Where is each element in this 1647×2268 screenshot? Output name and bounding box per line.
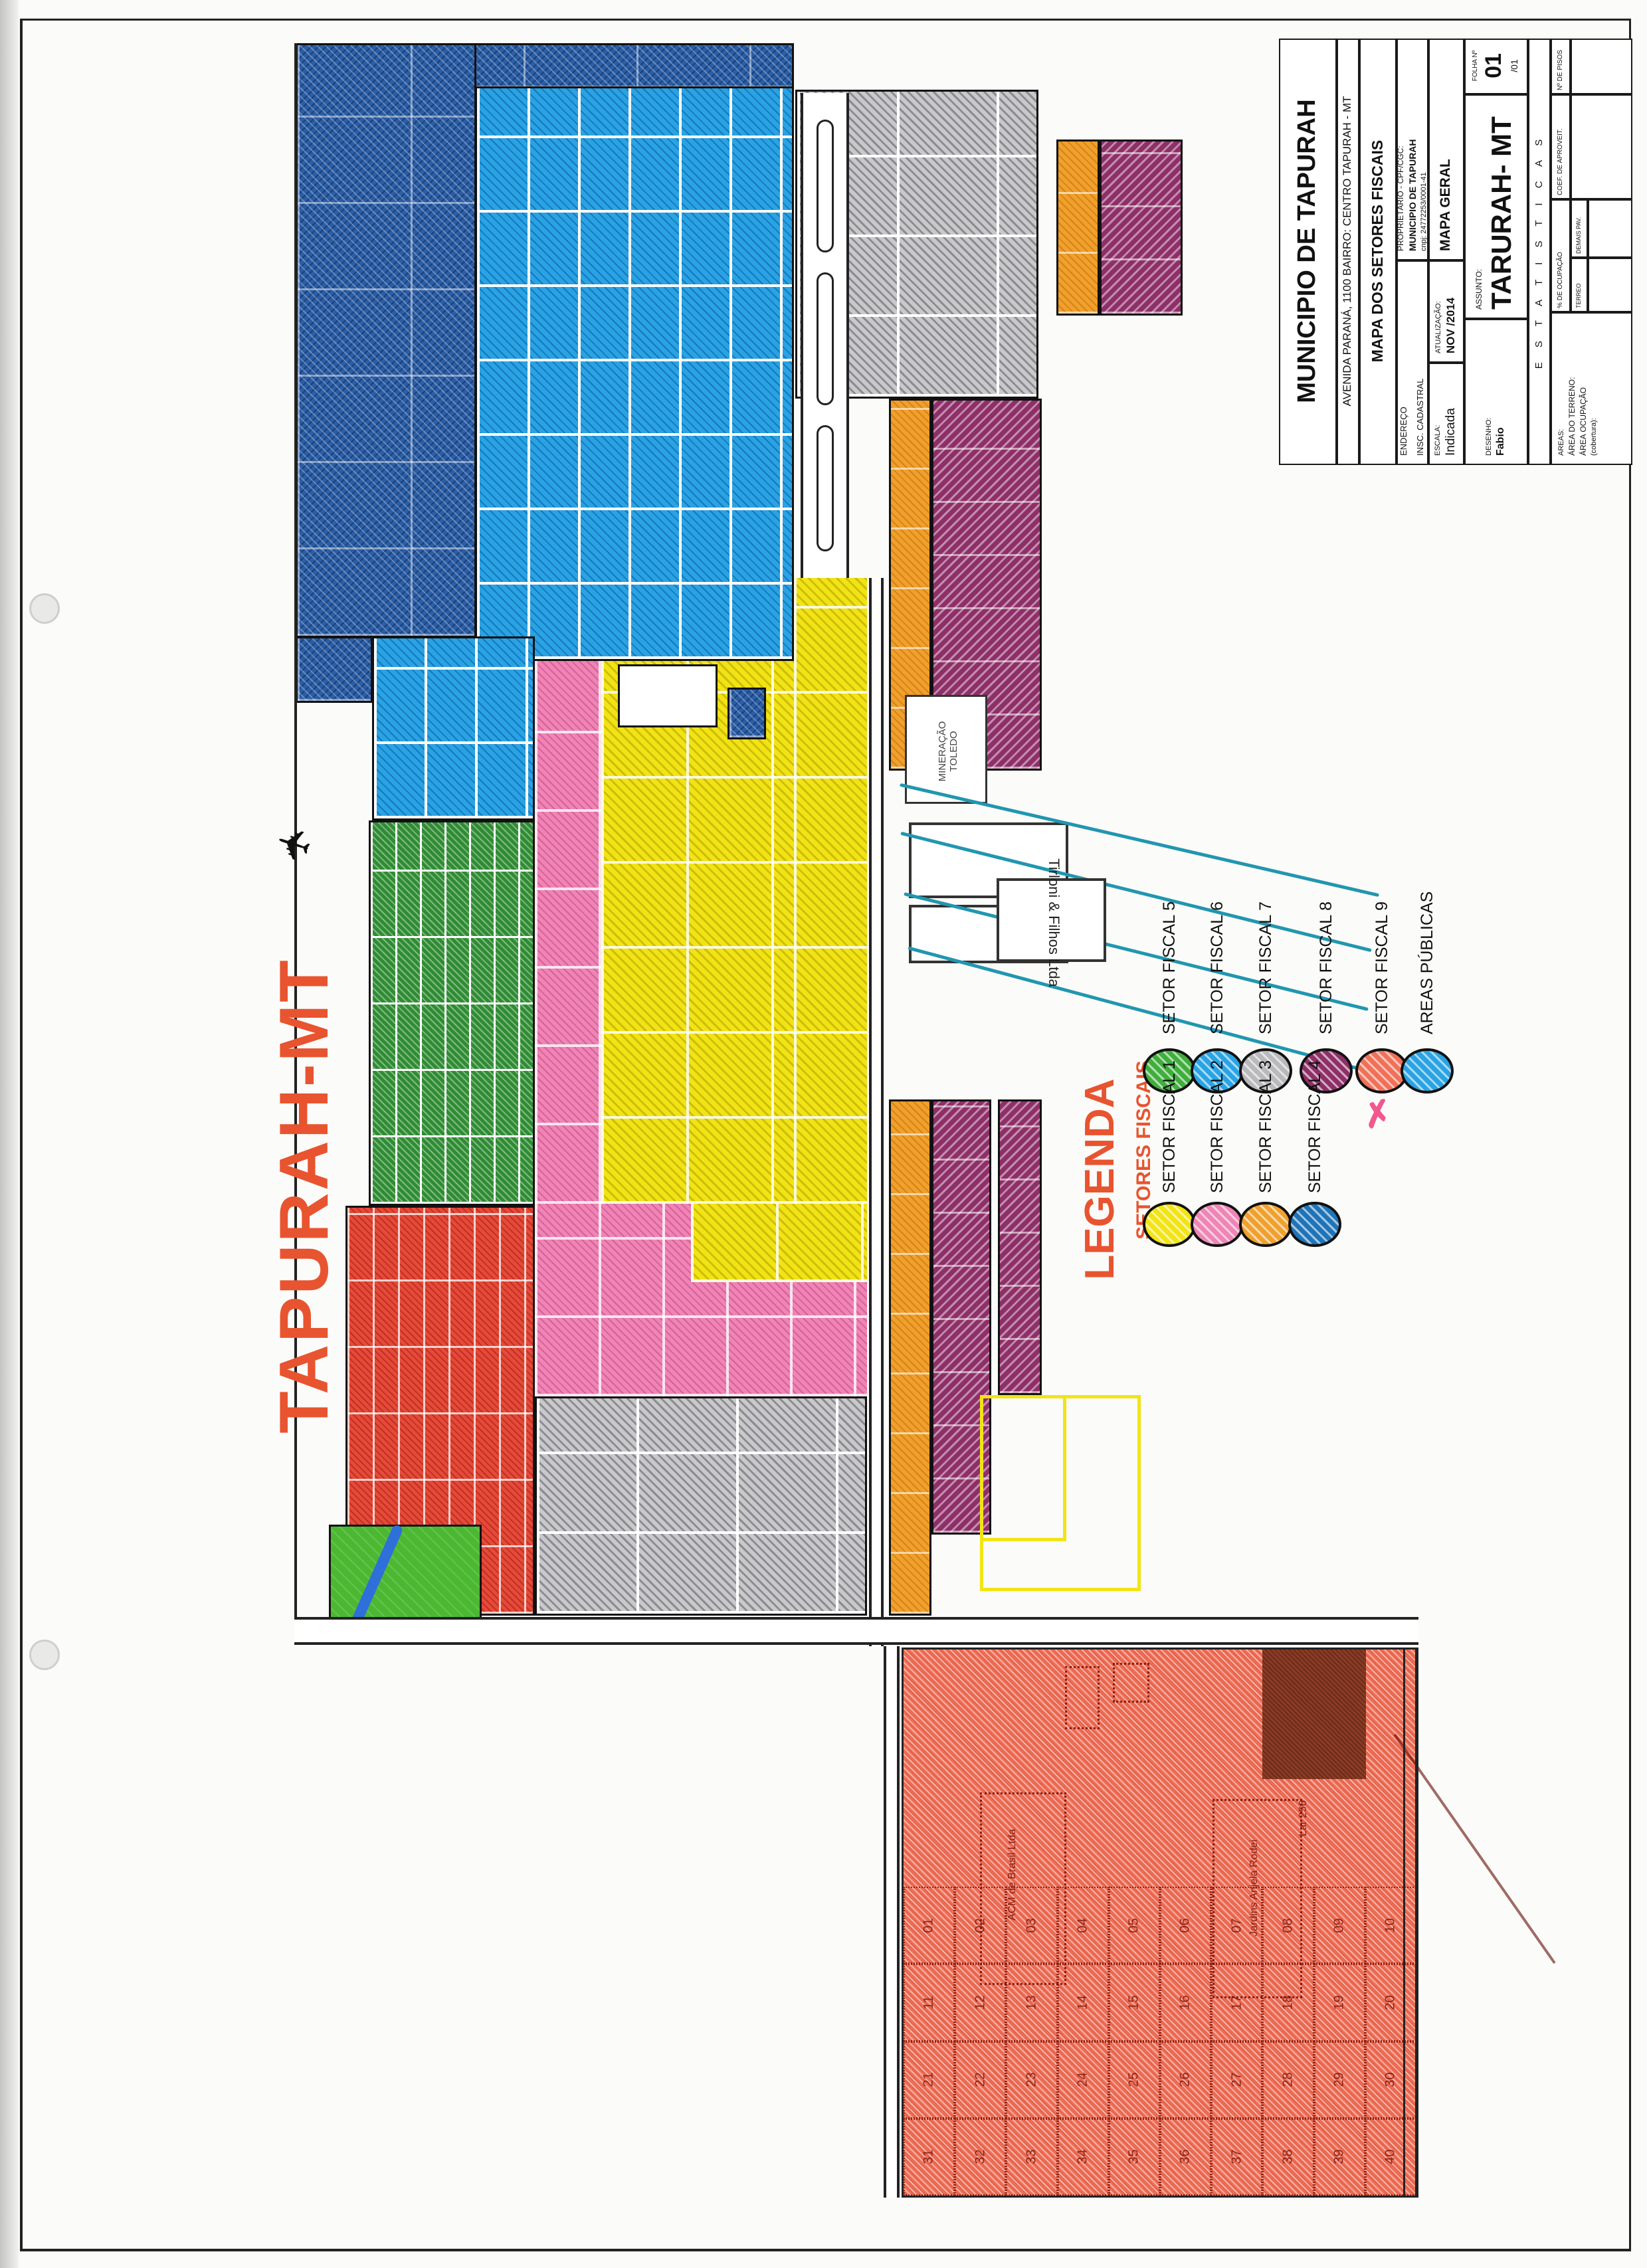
- lot-cell: 13: [1006, 1964, 1057, 2041]
- tb-areas-cell: AREAS: ÁREA DO TERRENO: ÁREA OCUPAÇÃO (c…: [1551, 312, 1632, 465]
- lot-cell: 25: [1109, 2041, 1160, 2119]
- page-border-top: [20, 19, 1631, 21]
- region-setor-fiscal-1: [601, 661, 794, 1204]
- lot-cell: 02: [955, 1887, 1006, 1964]
- tb-coef-label-cell: COEF. DE APROVEIT.: [1551, 94, 1571, 199]
- lot-cell: 03: [1006, 1887, 1057, 1964]
- tb-statistics-header: E S T A T I S T I C A S: [1533, 134, 1545, 369]
- lot-cell: 29: [1314, 2041, 1365, 2119]
- legend-label-7: SETOR FISCAL 7: [1254, 895, 1277, 1034]
- tb-stat-coef: COEF. DE APROVEIT.: [1557, 97, 1564, 195]
- lot-cell: 33: [1006, 2119, 1057, 2196]
- tb-stats-header-cell: E S T A T I S T I C A S: [1528, 39, 1551, 465]
- tb-areas-occupation: ÁREA OCUPAÇÃO: [1579, 320, 1588, 456]
- tb-assunto-cell: ASSUNTO: TARURAH- MT: [1464, 94, 1528, 319]
- region-setor-fiscal-4b: [296, 43, 476, 638]
- tb-escala-label: ESCALA:: [1434, 371, 1442, 456]
- lot-cell: 15: [1109, 1964, 1160, 2041]
- road-salmon-left: [884, 1646, 900, 2198]
- hole-punch-top: [29, 593, 60, 624]
- tb-atualizacao-label: ATUALIZAÇÃO:: [1434, 268, 1442, 353]
- tb-owner: MUNICIPIO DE TAPURAH: [1407, 47, 1418, 251]
- airplane-icon: ✈: [269, 816, 318, 875]
- empty-block: [618, 664, 718, 727]
- lot-cell: 18: [1262, 1964, 1313, 2041]
- legend-label-4: SETOR FISCAL 4: [1304, 1074, 1326, 1193]
- parcel-lar-label: Lar 256: [1298, 1800, 1309, 1836]
- region-setor-fiscal-2: [535, 661, 601, 1204]
- tb-desenho-cell: DESENHO: Fabio: [1464, 319, 1528, 465]
- tb-escala-value: Indicada: [1444, 371, 1458, 456]
- mineracao-toledo-label: MINERAÇÃO TOLEDO: [935, 697, 961, 806]
- tb-stat-other-floors: DEMAIS PAV.: [1575, 202, 1582, 254]
- region-setor-fiscal-1-tail: [691, 1204, 867, 1282]
- region-setor-fiscal-7-lower: [535, 1396, 867, 1616]
- diagonal-road: [1393, 1734, 1555, 1964]
- tb-address: AVENIDA PARANÁ, 1100 BAIRRO: CENTRO TAPU…: [1341, 96, 1354, 407]
- lot-cell: 28: [1262, 2041, 1313, 2119]
- tb-assunto-value: TARURAH- MT: [1486, 102, 1517, 310]
- pink-x-mark: ✗: [1359, 1092, 1396, 1137]
- lot-cell: 19: [1314, 1964, 1365, 2041]
- tb-areas-coverage: (cobertura):: [1590, 320, 1598, 456]
- tb-folha-sub: /01: [1509, 59, 1519, 72]
- lot-cell: 10: [1365, 1887, 1416, 1964]
- lot-cell: 16: [1160, 1964, 1211, 2041]
- tb-owner-cell: PROPRIETÁRIO - CPF/CGC: MUNICIPIO DE TAP…: [1397, 39, 1428, 260]
- lot-cell: 22: [955, 2041, 1006, 2119]
- lot-cell: 14: [1058, 1964, 1109, 2041]
- tb-municipality-cell: MUNICIPIO DE TAPURAH: [1279, 39, 1337, 465]
- city-name-label: TAPURAH-MT: [261, 953, 347, 1438]
- tb-terreo-label-cell: TERREO: [1571, 258, 1588, 312]
- legend-label-8: SETOR FISCAL 8: [1315, 895, 1337, 1034]
- tirloni-box: Tirloni & Filhos Ltda: [997, 878, 1106, 962]
- region-setor-fiscal-8-lower2: [998, 1099, 1042, 1395]
- yellow-outline-parcel-inner: [980, 1395, 1066, 1541]
- lot-cell: 06: [1160, 1887, 1211, 1964]
- legend-title: LEGENDA: [1073, 1086, 1126, 1272]
- lot-cell: 24: [1058, 2041, 1109, 2119]
- tb-atualizacao-cell: ATUALIZAÇÃO: NOV /2014: [1428, 260, 1464, 363]
- lot-cell: 38: [1262, 2119, 1313, 2196]
- legend-label-10: AREAS PÚBLICAS: [1416, 895, 1438, 1034]
- region-setor-fiscal-3-top: [1056, 140, 1100, 316]
- avenue-median: [817, 120, 834, 252]
- tb-floors-value-cell: [1571, 39, 1632, 94]
- lot-cell: 21: [904, 2041, 955, 2119]
- tb-desenho-label: DESENHO:: [1485, 327, 1493, 456]
- tb-coef-value-cell: [1571, 94, 1632, 199]
- region-setor-fiscal-5: [369, 820, 535, 1206]
- scanned-map-page: MINERAÇÃO TOLEDO Tirloni & Filhos Ltda A…: [0, 0, 1647, 2268]
- dotted-parcel-small-2: [1113, 1663, 1149, 1703]
- tb-insc-label: INSC. CADASTRAL: [1415, 268, 1425, 456]
- page-border-bottom: [20, 2249, 1631, 2251]
- legend-swatch-4: [1288, 1202, 1341, 1247]
- avenue-median: [817, 272, 834, 405]
- tb-map-title: MAPA DOS SETORES FISCAIS: [1369, 140, 1387, 362]
- legend-label-9: SETOR FISCAL 9: [1371, 895, 1393, 1034]
- tb-atualizacao-value: NOV /2014: [1444, 268, 1458, 353]
- legend-label-1: SETOR FISCAL 1: [1158, 1074, 1181, 1193]
- page-border-left: [20, 19, 23, 2251]
- lot-cell: 27: [1211, 2041, 1262, 2119]
- stream-line: [908, 946, 1357, 1070]
- tb-municipality: MUNICIPIO DE TAPURAH: [1293, 99, 1321, 403]
- lot-cell: 12: [955, 1964, 1006, 2041]
- lot-cell: 09: [1314, 1887, 1365, 1964]
- region-setor-fiscal-4c: [296, 636, 373, 703]
- legend-swatch-2: [1191, 1202, 1244, 1247]
- legend-swatch-3: [1239, 1202, 1292, 1247]
- lot-grid: 0102030405060708091011121314151617181920…: [904, 1887, 1416, 2196]
- lot-cell: 40: [1365, 2119, 1416, 2196]
- lot-cell: 11: [904, 1964, 955, 2041]
- dark-block: [727, 688, 766, 739]
- lot-cell: 04: [1058, 1887, 1109, 1964]
- legend-label-2: SETOR FISCAL 2: [1206, 1074, 1228, 1193]
- tb-assunto-label: ASSUNTO:: [1474, 102, 1484, 310]
- tb-endereco-label: ENDEREÇO: [1399, 268, 1408, 456]
- road-salmon-right: [1403, 1648, 1405, 2198]
- brown-parcel: [1262, 1650, 1366, 1779]
- lot-cell: 30: [1365, 2041, 1416, 2119]
- lot-cell: 35: [1109, 2119, 1160, 2196]
- tb-desenho-value: Fabio: [1495, 327, 1507, 456]
- lot-cell: 32: [955, 2119, 1006, 2196]
- tb-maptitle-cell: MAPA DOS SETORES FISCAIS: [1359, 39, 1397, 465]
- lot-cell: 20: [1365, 1964, 1416, 2041]
- legend-swatch-1: [1143, 1202, 1196, 1247]
- lot-cell: 05: [1109, 1887, 1160, 1964]
- hole-punch-bottom: [29, 1640, 60, 1670]
- avenue: [801, 93, 849, 578]
- tb-mapa-geral: MAPA GERAL: [1438, 47, 1454, 251]
- legend-swatch-10: [1401, 1048, 1454, 1093]
- tb-folha-label: FOLHA Nº: [1472, 50, 1479, 81]
- tb-areas-label: AREAS:: [1557, 320, 1565, 456]
- region-setor-fiscal-8-top: [1100, 140, 1183, 316]
- legend-label-5: SETOR FISCAL 5: [1158, 895, 1181, 1034]
- road-salmon-right2: [1415, 1648, 1417, 2198]
- lot-cell: 23: [1006, 2041, 1057, 2119]
- lot-cell: 34: [1058, 2119, 1109, 2196]
- tirloni-label: Tirloni & Filhos Ltda: [1040, 850, 1067, 996]
- road-horizontal: [294, 1617, 1418, 1645]
- lot-cell: 39: [1314, 2119, 1365, 2196]
- tb-occupancy-label-cell: % DE OCUPAÇÃO: [1551, 199, 1571, 312]
- lot-cell: 37: [1211, 2119, 1262, 2196]
- legend-label-3: SETOR FISCAL 3: [1254, 1074, 1277, 1193]
- lot-cell: 01: [904, 1887, 955, 1964]
- tb-folha-cell: FOLHA Nº 01 /01: [1464, 39, 1528, 94]
- region-setor-fiscal-6: [475, 86, 794, 661]
- tb-demais-label-cell: DEMAIS PAV.: [1571, 199, 1588, 258]
- tb-stat-floors: Nº DE PISOS: [1557, 41, 1564, 90]
- tb-demais-value-cell: [1588, 199, 1632, 258]
- tb-mapageral-cell: MAPA GERAL: [1428, 39, 1464, 260]
- tb-address-cell: AVENIDA PARANÁ, 1100 BAIRRO: CENTRO TAPU…: [1337, 39, 1359, 465]
- tb-owner-label: PROPRIETÁRIO - CPF/CGC:: [1396, 47, 1405, 251]
- legend-label-6: SETOR FISCAL 6: [1206, 895, 1228, 1034]
- region-setor-fiscal-1b: [794, 578, 867, 1204]
- region-setor-fiscal-3-lower: [889, 1099, 931, 1616]
- region-park: [329, 1525, 482, 1622]
- lot-cell: 07: [1211, 1887, 1262, 1964]
- lot-cell: 26: [1160, 2041, 1211, 2119]
- avenue-median: [817, 425, 834, 551]
- tb-escala-cell: ESCALA: Indicada: [1428, 363, 1464, 465]
- tb-terreo-value-cell: [1588, 258, 1632, 312]
- tb-cnpj: cnpj: 24772253/0001-41: [1420, 47, 1428, 251]
- tb-stat-ground: TERREO: [1575, 260, 1582, 308]
- region-setor-fiscal-6-strip: [372, 636, 535, 820]
- tb-areas-terrain: ÁREA DO TERRENO:: [1567, 320, 1577, 456]
- lot-cell: 36: [1160, 2119, 1211, 2196]
- lot-cell: 31: [904, 2119, 955, 2196]
- dotted-parcel-small-1: [1065, 1666, 1100, 1729]
- lot-cell: 17: [1211, 1964, 1262, 2041]
- tb-endereco-cell: ENDEREÇO INSC. CADASTRAL: [1397, 260, 1428, 465]
- lot-cell: 08: [1262, 1887, 1313, 1964]
- tb-folha-value: 01: [1481, 53, 1507, 78]
- road-vertical: [869, 578, 884, 1646]
- tb-stat-occupancy: % DE OCUPAÇÃO: [1557, 202, 1564, 308]
- tb-floors-label-cell: Nº DE PISOS: [1551, 39, 1571, 94]
